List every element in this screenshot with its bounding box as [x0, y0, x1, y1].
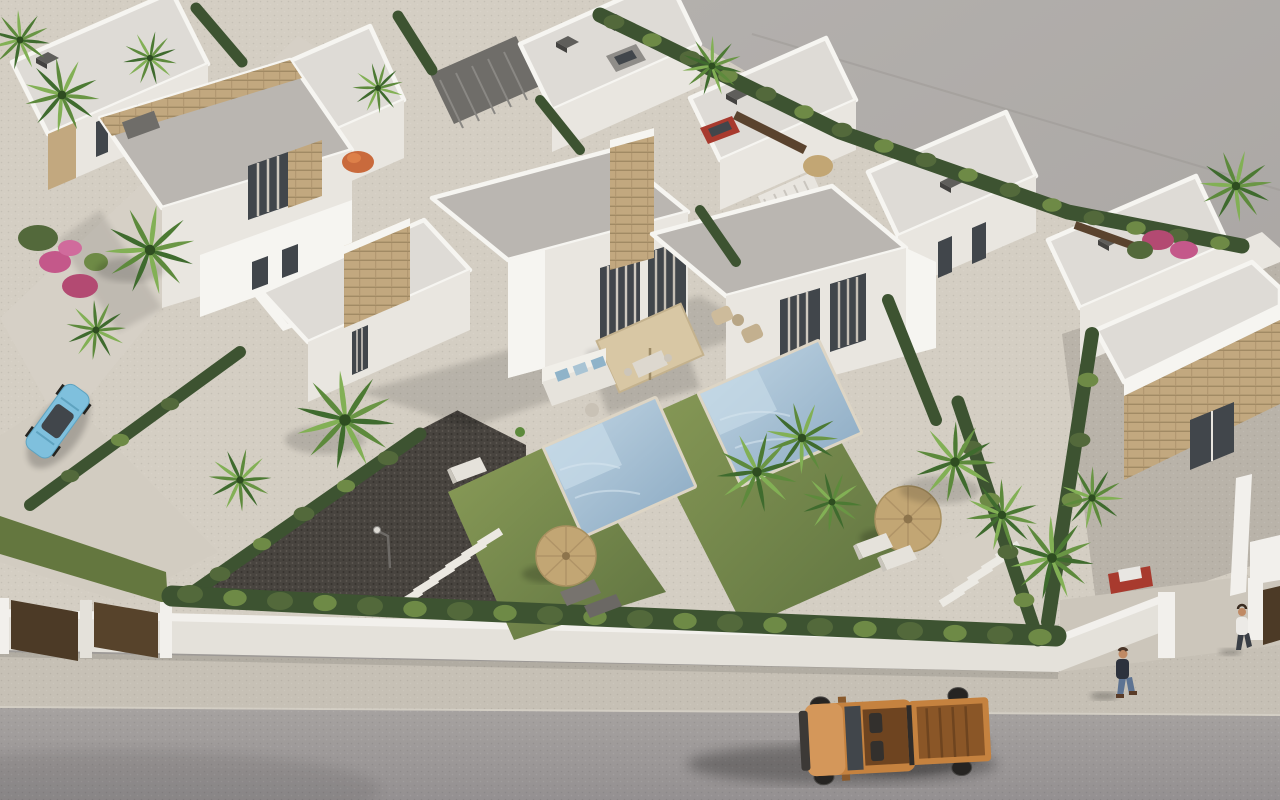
right-wall-stub — [1250, 535, 1280, 585]
plant-pot — [515, 427, 525, 437]
gate-post — [80, 600, 92, 658]
orange-parasol — [342, 151, 374, 173]
gate-post — [160, 602, 172, 658]
gate-post — [0, 598, 9, 654]
coffee-table — [585, 403, 599, 417]
windshield — [844, 706, 863, 771]
gate-pillar — [1248, 578, 1263, 640]
gate-pillar — [1158, 592, 1175, 658]
villa-development-render — [0, 0, 1280, 800]
straw-parasol-top — [803, 155, 833, 177]
stone-chimney — [610, 128, 654, 270]
entry-gate-right — [1263, 586, 1280, 645]
render-canvas — [0, 0, 1280, 800]
